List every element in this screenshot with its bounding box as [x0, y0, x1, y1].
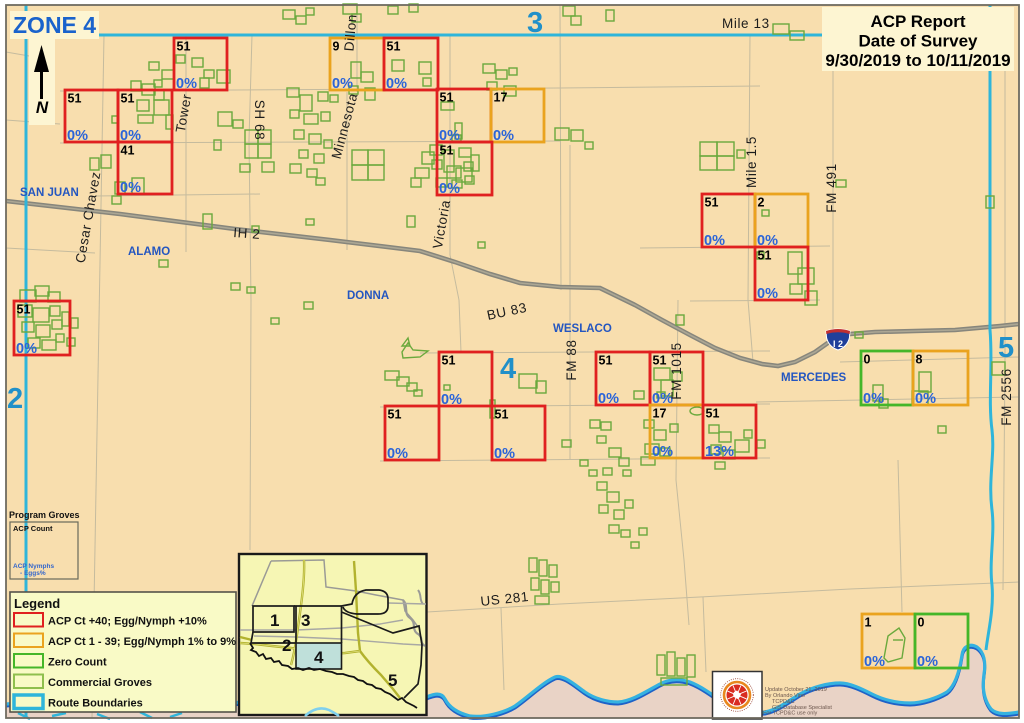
svg-text:ZONE 4: ZONE 4	[13, 12, 96, 38]
svg-text:17: 17	[494, 91, 508, 105]
svg-text:0%: 0%	[441, 392, 462, 408]
svg-text:0%: 0%	[332, 76, 353, 92]
svg-text:4: 4	[500, 353, 516, 385]
svg-text:51: 51	[495, 408, 509, 422]
svg-text:2: 2	[282, 636, 291, 655]
svg-text:51: 51	[442, 354, 456, 368]
svg-text:0: 0	[864, 353, 871, 367]
svg-text:51: 51	[758, 249, 772, 263]
svg-text:0%: 0%	[387, 446, 408, 462]
svg-text:0%: 0%	[598, 391, 619, 407]
svg-text:- Eggs%: - Eggs%	[20, 570, 46, 577]
svg-text:3: 3	[527, 7, 543, 39]
svg-text:0: 0	[918, 616, 925, 630]
svg-text:N: N	[36, 98, 49, 117]
svg-text:1: 1	[865, 616, 872, 630]
svg-text:51: 51	[705, 196, 719, 210]
svg-text:Zero Count: Zero Count	[48, 657, 107, 669]
svg-text:ALAMO: ALAMO	[128, 246, 170, 258]
svg-text:0%: 0%	[864, 654, 885, 670]
svg-text:Legend: Legend	[14, 596, 60, 611]
svg-text:9/30/2019 to 10/11/2019: 9/30/2019 to 10/11/2019	[825, 51, 1010, 70]
svg-text:MERCEDES: MERCEDES	[781, 372, 847, 384]
svg-text:ACP Ct +40; Egg/Nymph +10%: ACP Ct +40; Egg/Nymph +10%	[48, 616, 207, 628]
svg-text:Commercial Groves: Commercial Groves	[48, 677, 152, 689]
svg-text:51: 51	[706, 407, 720, 421]
svg-text:41: 41	[121, 144, 135, 158]
svg-text:0%: 0%	[704, 233, 725, 249]
svg-text:0%: 0%	[120, 180, 141, 196]
svg-text:For TCPD&C use only: For TCPD&C use only	[763, 711, 818, 717]
svg-text:IH 2: IH 2	[233, 225, 261, 242]
svg-text:0%: 0%	[176, 76, 197, 92]
svg-text:0%: 0%	[494, 446, 515, 462]
svg-text:0%: 0%	[439, 181, 460, 197]
svg-text:ACP Nymphs: ACP Nymphs	[13, 563, 54, 570]
svg-text:5: 5	[388, 671, 397, 690]
svg-text:ACP Report: ACP Report	[870, 12, 965, 31]
svg-text:4: 4	[314, 648, 324, 667]
svg-text:Mile 1.5: Mile 1.5	[744, 136, 759, 188]
svg-text:I 2: I 2	[833, 339, 843, 349]
svg-text:0%: 0%	[917, 654, 938, 670]
svg-text:51: 51	[653, 354, 667, 368]
svg-text:FM 88: FM 88	[564, 339, 579, 380]
svg-text:51: 51	[121, 92, 135, 106]
svg-text:WESLACO: WESLACO	[553, 323, 612, 335]
svg-text:5: 5	[998, 332, 1014, 364]
svg-text:51: 51	[388, 408, 402, 422]
svg-text:Route Boundaries: Route Boundaries	[48, 698, 143, 710]
svg-text:3: 3	[301, 611, 310, 630]
svg-text:9: 9	[333, 40, 340, 54]
svg-text:51: 51	[68, 92, 82, 106]
svg-text:51: 51	[599, 354, 613, 368]
svg-text:0%: 0%	[67, 128, 88, 144]
svg-text:2: 2	[7, 383, 23, 415]
svg-text:FM 1015: FM 1015	[669, 342, 684, 399]
svg-text:Program Groves: Program Groves	[9, 510, 80, 520]
svg-text:1: 1	[270, 611, 279, 630]
svg-text:0%: 0%	[757, 286, 778, 302]
svg-text:ACP Ct 1 - 39; Egg/Nymph 1% to: ACP Ct 1 - 39; Egg/Nymph 1% to 9%	[48, 636, 236, 648]
svg-text:SAN JUAN: SAN JUAN	[20, 187, 79, 199]
svg-text:51: 51	[440, 144, 454, 158]
svg-text:8: 8	[916, 353, 923, 367]
svg-text:Date of Survey: Date of Survey	[858, 32, 978, 51]
svg-text:51: 51	[177, 40, 191, 54]
svg-text:0%: 0%	[915, 391, 936, 407]
svg-text:2: 2	[758, 196, 765, 210]
svg-text:0%: 0%	[863, 391, 884, 407]
svg-text:0%: 0%	[493, 128, 514, 144]
svg-text:0%: 0%	[386, 76, 407, 92]
svg-text:51: 51	[387, 40, 401, 54]
svg-text:0%: 0%	[652, 444, 673, 460]
svg-text:DONNA: DONNA	[347, 290, 389, 302]
svg-text:17: 17	[653, 407, 667, 421]
svg-text:ACP Count: ACP Count	[13, 524, 53, 533]
svg-text:51: 51	[17, 303, 31, 317]
svg-text:SH 68: SH 68	[252, 100, 267, 141]
svg-text:Mile 13: Mile 13	[722, 16, 770, 31]
svg-text:0%: 0%	[16, 341, 37, 357]
svg-text:FM 491: FM 491	[824, 163, 839, 212]
svg-text:13%: 13%	[705, 444, 734, 460]
svg-text:51: 51	[440, 91, 454, 105]
svg-text:FM 2556: FM 2556	[999, 368, 1014, 425]
